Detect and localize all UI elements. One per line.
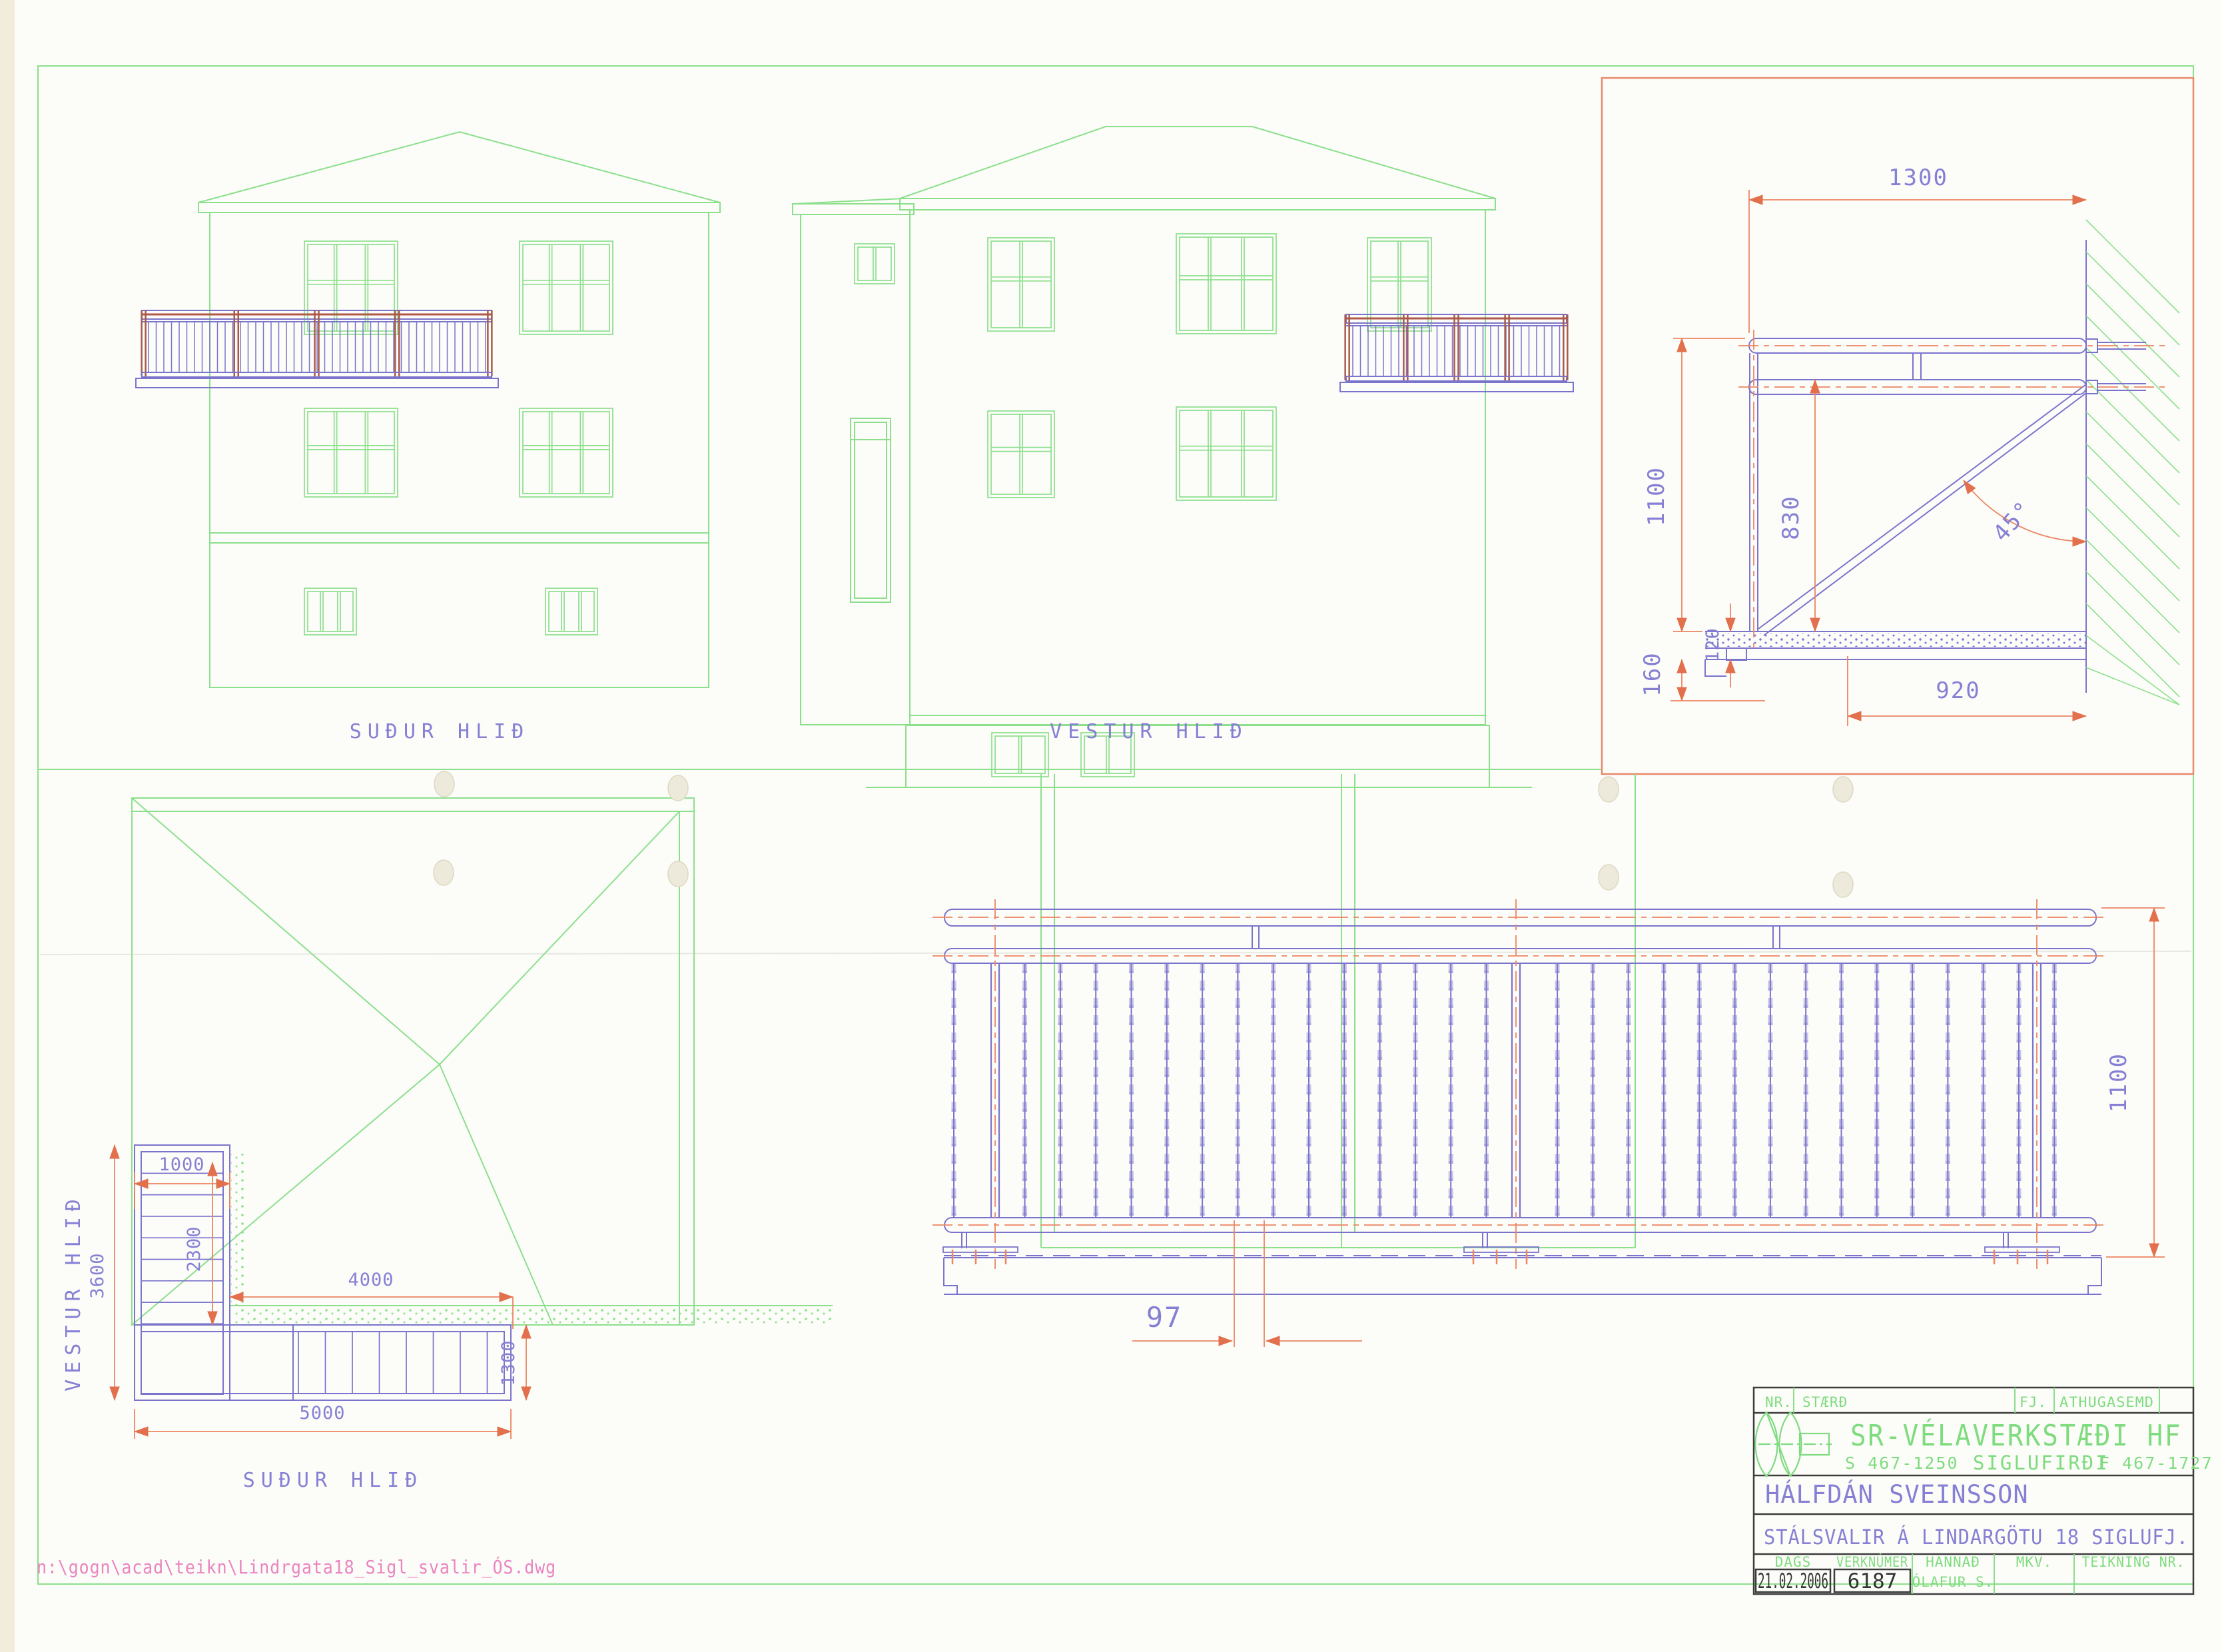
footer-job-value: 6187 <box>1848 1569 1898 1593</box>
client-name: HÁLFDÁN SVEINSSON <box>1765 1479 2029 1509</box>
dim-1100: 1100 <box>1643 466 1670 526</box>
adhesive-dot <box>668 775 688 801</box>
deck-hatch-fill <box>1705 633 2086 647</box>
footer-teikning-label: TEIKNING NR. <box>2082 1554 2185 1570</box>
scanned-cad-sheet: SUÐUR HLIÐ VESTUR HLIÐ <box>0 0 2222 1652</box>
dim-920: 920 <box>1936 677 1980 704</box>
adhesive-dot <box>668 861 688 887</box>
cad-drawing-canvas: SUÐUR HLIÐ VESTUR HLIÐ <box>0 0 2222 1652</box>
header-fj: FJ. <box>2020 1394 2047 1410</box>
adhesive-dot <box>434 860 454 885</box>
dim-1300: 1300 <box>498 1340 519 1386</box>
company-name: SR-VÉLAVERKSTÆÐI HF <box>1850 1418 2182 1453</box>
footer-date-value: 21.02.2006 <box>1758 1569 1828 1593</box>
project-title: STÁLSVALIR Á LINDARGÖTU 18 SIGLUFJ. <box>1764 1525 2189 1549</box>
dim-1300: 1300 <box>1888 165 1948 191</box>
wall-texture <box>234 1307 833 1324</box>
west-elevation-label: VESTUR HLIÐ <box>1050 720 1248 743</box>
dim-160: 160 <box>1639 651 1666 696</box>
dim-2300: 2300 <box>184 1226 204 1272</box>
plan-west-label: VESTUR HLIÐ <box>62 1193 85 1392</box>
plan-south-label: SUÐUR HLIÐ <box>243 1469 424 1492</box>
file-path-annotation: n:\gogn\acad\teikn\Lindrgata18_Sigl_sval… <box>37 1555 556 1579</box>
footer-dags-label: DAGS <box>1775 1554 1812 1570</box>
footer-designed-value: ÓLAFUR S. <box>1912 1573 1994 1590</box>
adhesive-dot <box>1833 872 1853 897</box>
dim-97: 97 <box>1146 1301 1183 1334</box>
adhesive-dot <box>434 771 454 797</box>
footer-hannad-label: HANNAÐ <box>1926 1554 1980 1570</box>
company-city: SIGLUFIRÐI <box>1973 1451 2109 1474</box>
adhesive-dot <box>1599 777 1619 802</box>
dim-1000: 1000 <box>159 1154 204 1175</box>
company-phone: S 467-1250 <box>1845 1453 1959 1473</box>
dim-1100: 1100 <box>2105 1052 2132 1112</box>
dim-5000: 5000 <box>299 1403 345 1424</box>
footer-mkv-label: MKV. <box>2016 1554 2053 1570</box>
dim-3600: 3600 <box>87 1252 108 1298</box>
adhesive-dot <box>1833 777 1853 802</box>
wall-texture <box>231 1154 247 1306</box>
dim-120: 120 <box>1702 627 1723 662</box>
dim-830: 830 <box>1778 495 1804 540</box>
company-fax: F 467-1727 <box>2099 1453 2213 1473</box>
header-athugasemd: ATHUGASEMD <box>2059 1394 2154 1410</box>
header-nr: NR. <box>1765 1394 1792 1410</box>
footer-verknumer-label: VERKNÚMER <box>1836 1553 1908 1570</box>
header-staerd: STÆRÐ <box>1802 1394 1848 1410</box>
adhesive-dot <box>1599 865 1619 890</box>
scan-edge-strip <box>0 0 15 1652</box>
dim-4000: 4000 <box>348 1270 394 1290</box>
south-elevation-label: SUÐUR HLIÐ <box>350 720 530 743</box>
